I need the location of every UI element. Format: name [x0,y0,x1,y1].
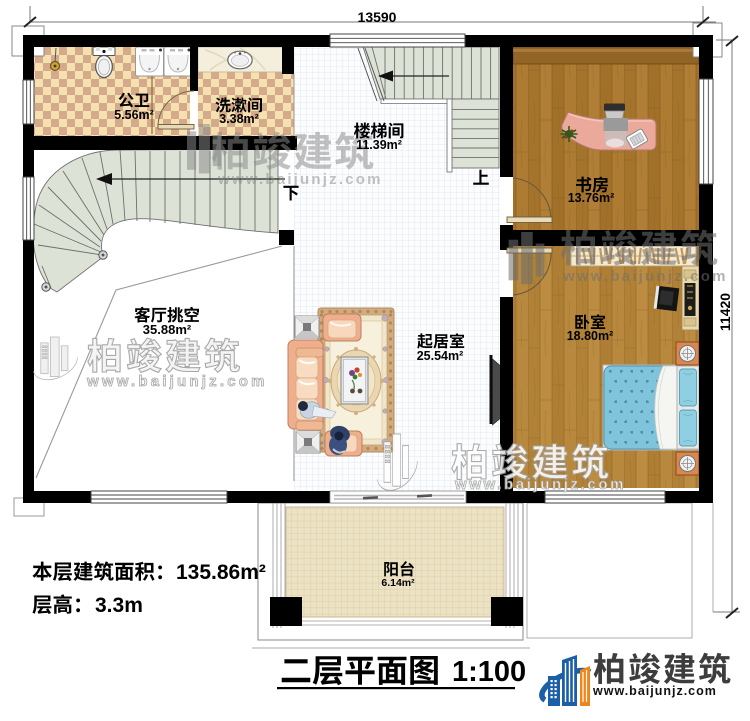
svg-text:3.38m²: 3.38m² [219,112,259,126]
svg-text:1:100: 1:100 [452,656,526,688]
svg-text:3.3m: 3.3m [95,594,143,617]
svg-text:www.baijunjz.com: www.baijunjz.com [86,373,268,390]
svg-text:11420: 11420 [717,293,733,331]
svg-text:135.86m²: 135.86m² [176,561,266,584]
svg-text:5.56m²: 5.56m² [114,108,154,122]
svg-text:6.14m²: 6.14m² [381,577,415,589]
svg-text:www.baijunjz.com: www.baijunjz.com [217,171,383,188]
svg-text:35.88m²: 35.88m² [143,322,192,337]
svg-text:11.39m²: 11.39m² [356,138,402,152]
svg-text:www.baijunjz.com: www.baijunjz.com [454,476,626,493]
svg-text:13590: 13590 [358,9,397,25]
svg-text:www.baijunjz.com: www.baijunjz.com [592,684,717,698]
svg-text:25.54m²: 25.54m² [417,349,464,363]
svg-text:18.80m²: 18.80m² [567,329,614,343]
svg-text:www.baijunjz.com: www.baijunjz.com [562,268,728,285]
svg-text:13.76m²: 13.76m² [568,191,615,205]
